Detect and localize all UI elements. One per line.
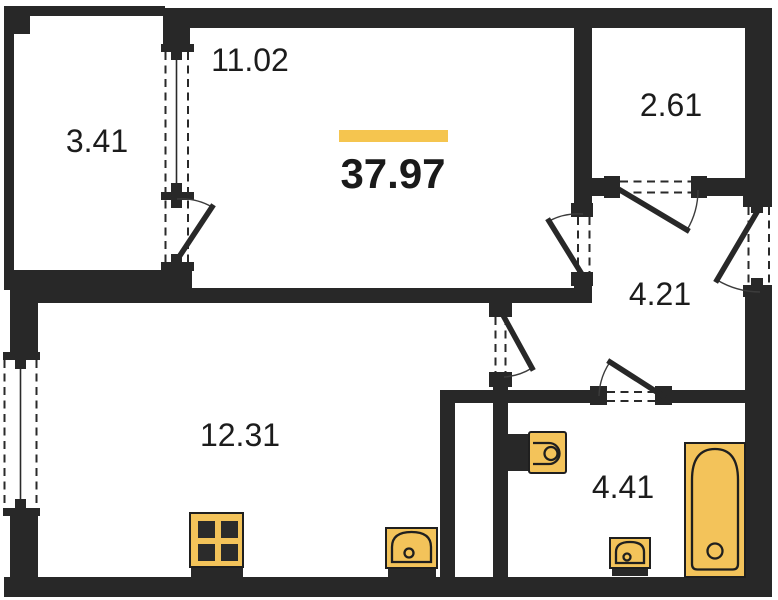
window-sill [3,352,40,360]
door-frame-nub [751,278,763,286]
wall-living-right-lower [574,285,592,303]
wash-basin-icon [610,538,650,576]
stove-burner [221,544,238,561]
stove-icon [190,513,243,577]
room-area-label-living-room: 11.02 [211,42,289,78]
total-area-highlight-bar [339,130,448,142]
wall-outer-right-lower [745,288,772,597]
door-casing [571,203,593,217]
wall-balcony-left [4,6,14,272]
wall-outer-top [163,8,772,28]
wall-outer-left-lower [10,516,38,577]
room-area-label-kitchen: 12.31 [200,417,280,453]
basin-base [612,568,648,576]
wall-shaft-left [440,390,455,577]
wall-mid-horizontal [10,288,592,303]
floor-plan-page: 37.97 3.41 11.02 2.61 4.21 12.31 4.41 [0,0,778,600]
stove-base [191,567,243,577]
window-frame-nub [15,499,26,508]
wall-outer-bottom [4,577,772,597]
room-area-label-hallway: 4.21 [629,276,691,312]
window-frame-nub [15,360,26,369]
toilet-tank [506,434,529,471]
door-casing [489,303,512,317]
floor-plan: 37.97 3.41 11.02 2.61 4.21 12.31 4.41 [0,0,778,600]
room-area-label-bathroom: 4.41 [592,469,654,505]
room-area-label-balcony: 3.41 [66,123,128,159]
wall-bathroom-top-left [440,390,593,403]
door-frame-nub [171,200,182,208]
wall-outer-left-upper [10,270,38,352]
door-casing [604,176,620,198]
door-casing [489,372,512,387]
stove-burner [221,521,238,538]
sink-base [388,568,436,577]
wall-bathroom-top-right [669,390,745,403]
wall-outer-right-upper [745,8,772,205]
stove-burner [198,521,215,538]
wall-bathroom-left [493,375,508,577]
stove-burner [198,544,215,561]
window-sill [3,508,40,516]
room-area-label-storage-room: 2.61 [640,87,702,123]
wall-balcony-junction [163,8,190,46]
window-sill [161,44,194,52]
toilet-icon [506,432,566,473]
wall-storage-bottom-right [705,178,745,196]
total-area-label: 37.97 [340,150,445,197]
door-casing [691,176,707,198]
bathtub-icon [685,443,745,577]
kitchen-sink-icon [386,528,437,577]
